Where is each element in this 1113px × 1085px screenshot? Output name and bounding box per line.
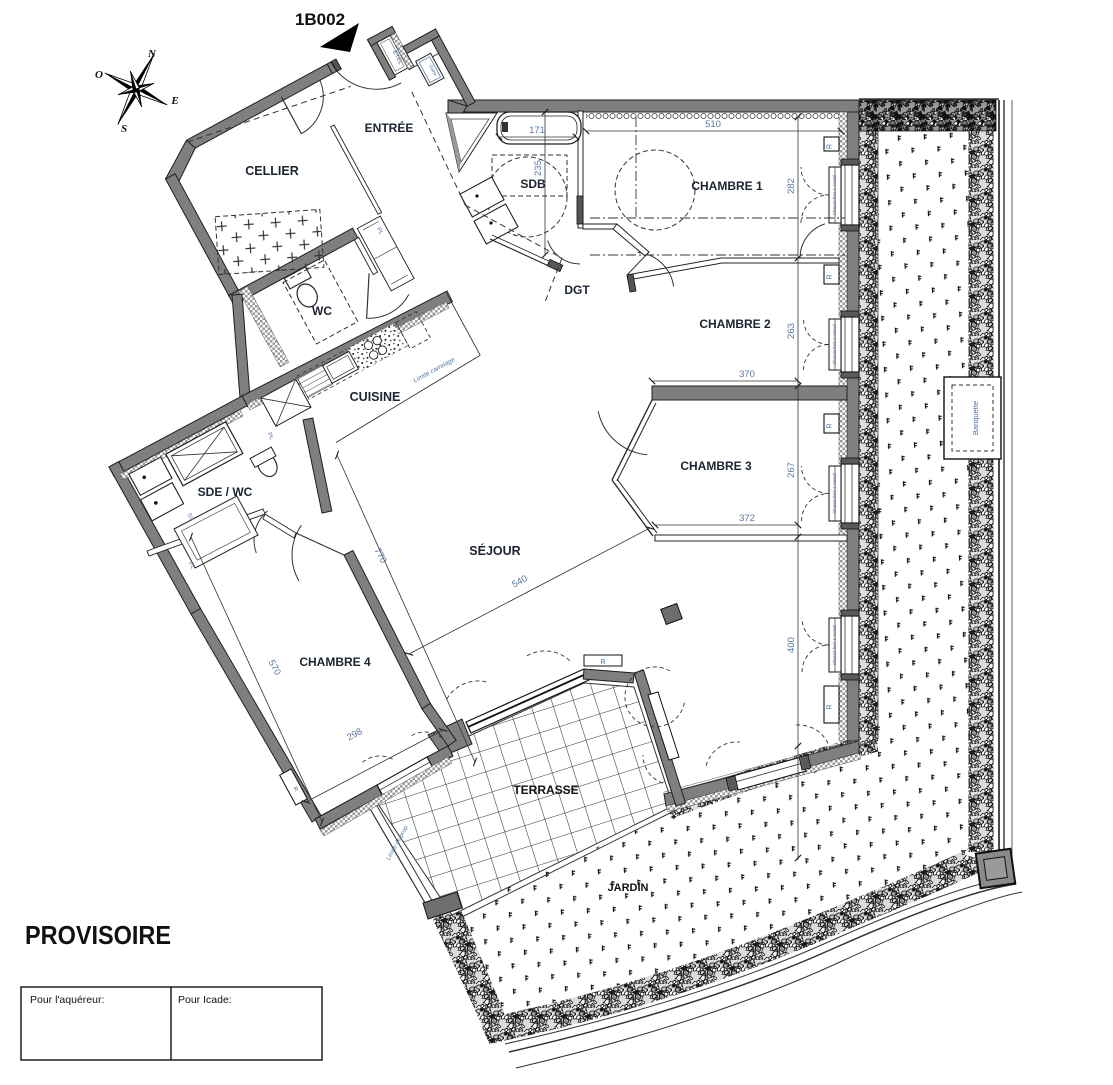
svg-text:SÉJOUR: SÉJOUR xyxy=(469,543,520,558)
svg-text:Limite carrelage: Limite carrelage xyxy=(412,356,456,384)
svg-text:Banquette: Banquette xyxy=(971,401,980,435)
svg-text:Pour Icade:: Pour Icade: xyxy=(178,994,232,1006)
svg-text:SDB: SDB xyxy=(520,177,546,191)
svg-text:Pour l'aquéreur:: Pour l'aquéreur: xyxy=(30,994,104,1006)
svg-text:CHAMBRE 1: CHAMBRE 1 xyxy=(691,179,763,193)
svg-text:CHAMBRE 3: CHAMBRE 3 xyxy=(680,459,752,473)
svg-text:235: 235 xyxy=(533,160,544,176)
svg-text:770: 770 xyxy=(372,546,389,565)
svg-text:PL: PL xyxy=(266,432,275,442)
svg-text:400: 400 xyxy=(786,637,797,653)
svg-text:570: 570 xyxy=(266,658,283,677)
svg-text:267: 267 xyxy=(786,462,797,478)
svg-text:ENTRÉE: ENTRÉE xyxy=(365,120,414,135)
svg-text:298: 298 xyxy=(345,726,364,743)
svg-text:CELLIER: CELLIER xyxy=(245,164,298,178)
svg-text:540: 540 xyxy=(510,573,529,590)
svg-text:370: 370 xyxy=(739,369,755,380)
svg-text:CHAMBRE 4: CHAMBRE 4 xyxy=(299,655,371,669)
svg-text:CUISINE: CUISINE xyxy=(350,390,401,404)
svg-text:SDE / WC: SDE / WC xyxy=(198,485,253,499)
svg-text:372: 372 xyxy=(739,513,755,524)
svg-text:Chassis bois 1 vantail: Chassis bois 1 vantail xyxy=(832,625,837,666)
svg-text:R: R xyxy=(600,659,605,666)
svg-text:282: 282 xyxy=(786,178,797,194)
svg-text:CHAMBRE 2: CHAMBRE 2 xyxy=(699,317,771,331)
svg-text:N: N xyxy=(147,48,157,60)
svg-text:DGT: DGT xyxy=(564,283,590,297)
svg-text:263: 263 xyxy=(786,323,797,339)
svg-text:TERRASSE: TERRASSE xyxy=(513,783,578,797)
svg-text:R: R xyxy=(827,423,834,428)
svg-text:JARDIN: JARDIN xyxy=(608,882,649,894)
svg-text:O: O xyxy=(95,69,103,81)
svg-text:171: 171 xyxy=(529,125,545,136)
svg-text:R: R xyxy=(827,274,834,279)
svg-text:Chassis bois 1 vantail: Chassis bois 1 vantail xyxy=(832,473,837,514)
svg-text:E: E xyxy=(170,95,178,107)
svg-text:1B002: 1B002 xyxy=(295,10,345,29)
svg-text:R: R xyxy=(827,704,834,709)
svg-text:PROVISOIRE: PROVISOIRE xyxy=(25,920,171,950)
svg-text:Chassis bois 1 vantail: Chassis bois 1 vantail xyxy=(832,324,837,365)
svg-text:S: S xyxy=(121,123,127,135)
svg-text:Chassis bois 1 vantail: Chassis bois 1 vantail xyxy=(832,175,837,216)
svg-text:510: 510 xyxy=(705,119,721,130)
svg-text:WC: WC xyxy=(312,304,332,318)
svg-text:R: R xyxy=(827,144,834,149)
